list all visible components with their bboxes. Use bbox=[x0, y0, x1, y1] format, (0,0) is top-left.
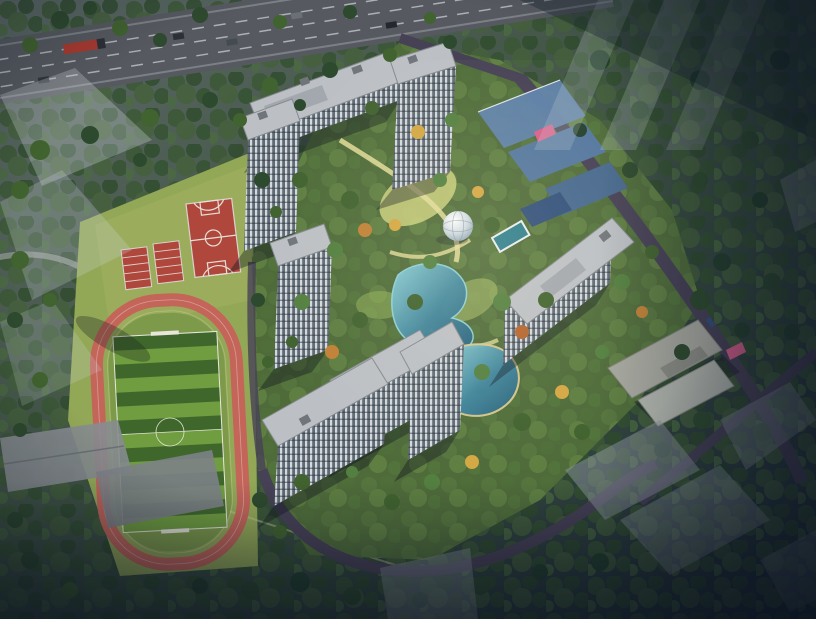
scene-canvas bbox=[0, 0, 816, 619]
vignette bbox=[0, 0, 816, 619]
aerial-rendering bbox=[0, 0, 816, 619]
